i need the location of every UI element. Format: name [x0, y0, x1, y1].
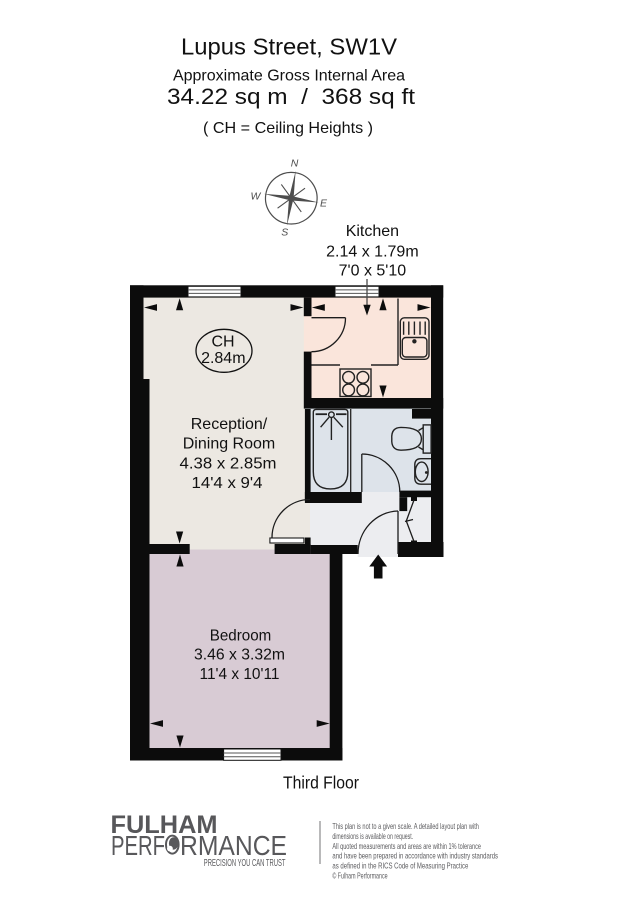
svg-text:34.22 sq m / 368 sq ft: 34.22 sq m / 368 sq ft: [167, 84, 416, 109]
svg-text:as defined in the RICS Code of: as defined in the RICS Code of Measuring…: [332, 862, 468, 871]
svg-text:14'4 x 9'4: 14'4 x 9'4: [192, 475, 263, 492]
svg-text:7'0 x 5'10: 7'0 x 5'10: [339, 263, 407, 280]
svg-text:2.14 x 1.79m: 2.14 x 1.79m: [326, 243, 419, 260]
svg-text:Third Floor: Third Floor: [283, 773, 359, 793]
svg-text:4.38 x 2.85m: 4.38 x 2.85m: [180, 455, 277, 472]
svg-text:2.84m: 2.84m: [201, 350, 245, 367]
svg-text:CH: CH: [211, 333, 234, 350]
svg-text:and have been prepared in acco: and have been prepared in accordance wit…: [332, 852, 498, 861]
svg-text:Approximate Gross Internal Are: Approximate Gross Internal Area: [173, 68, 405, 85]
svg-text:E: E: [320, 198, 328, 210]
svg-text:This plan is not to a given sc: This plan is not to a given scale. A det…: [332, 822, 479, 831]
svg-text:Kitchen: Kitchen: [346, 223, 399, 240]
svg-text:Lupus Street, SW1V: Lupus Street, SW1V: [181, 34, 397, 60]
svg-text:S: S: [281, 227, 288, 239]
svg-text:PRECISION YOU CAN TRUST: PRECISION YOU CAN TRUST: [204, 857, 286, 869]
svg-text:Reception/: Reception/: [191, 416, 268, 433]
svg-text:All quoted measurements and ar: All quoted measurements and areas are wi…: [332, 842, 481, 851]
svg-text:3.46 x 3.32m: 3.46 x 3.32m: [194, 647, 285, 664]
svg-text:Dining Room: Dining Room: [183, 436, 275, 453]
svg-text:11'4 x 10'11: 11'4 x 10'11: [200, 666, 280, 683]
svg-text:dimensions is available on req: dimensions is available on request.: [332, 832, 413, 841]
svg-text:© Fulham Performance: © Fulham Performance: [332, 872, 387, 881]
svg-text:W: W: [251, 191, 262, 203]
svg-text:N: N: [291, 158, 299, 170]
svg-text:Bedroom: Bedroom: [210, 628, 272, 645]
svg-text:PERF: PERF: [111, 830, 165, 861]
svg-text:( CH = Ceiling Heights ): ( CH = Ceiling Heights ): [203, 120, 373, 137]
